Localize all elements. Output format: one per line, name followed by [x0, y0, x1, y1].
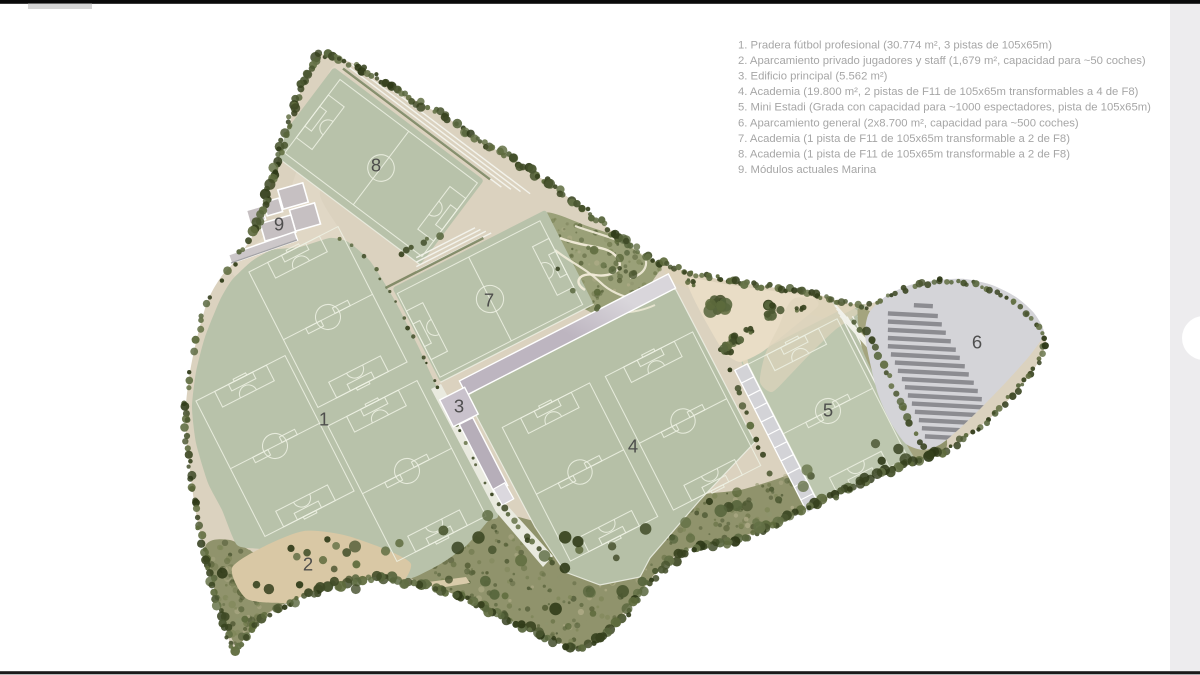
svg-text:9. Módulos actuales Marina: 9. Módulos actuales Marina — [738, 164, 877, 176]
svg-text:8. Academia (1 pista de F11 de: 8. Academia (1 pista de F11 de 105x65m t… — [738, 149, 1070, 161]
svg-text:3: 3 — [454, 396, 464, 417]
svg-text:2: 2 — [303, 554, 313, 575]
svg-text:2. Aparcamiento privado jugado: 2. Aparcamiento privado jugadores y staf… — [738, 55, 1146, 67]
svg-text:8: 8 — [371, 155, 381, 176]
svg-text:5. Mini Estadi (Grada con capa: 5. Mini Estadi (Grada con capacidad para… — [738, 102, 1151, 114]
svg-text:9: 9 — [274, 214, 284, 235]
svg-text:1. Pradera fútbol profesional: 1. Pradera fútbol profesional (30.774 m²… — [738, 39, 1052, 51]
svg-text:7: 7 — [484, 290, 494, 311]
svg-text:5: 5 — [823, 400, 833, 421]
svg-text:6. Aparcamiento general (2x8.7: 6. Aparcamiento general (2x8.700 m², cap… — [738, 117, 1079, 129]
svg-text:4. Academia (19.800 m², 2 pist: 4. Academia (19.800 m², 2 pistas de F11 … — [738, 86, 1139, 98]
svg-text:6: 6 — [972, 332, 982, 353]
svg-text:1: 1 — [319, 409, 329, 430]
svg-text:7. Academia (1 pista de F11 de: 7. Academia (1 pista de F11 de 105x65m t… — [738, 133, 1070, 145]
svg-text:3. Edificio principal (5.562 m: 3. Edificio principal (5.562 m²) — [738, 71, 888, 83]
svg-text:4: 4 — [628, 436, 638, 457]
